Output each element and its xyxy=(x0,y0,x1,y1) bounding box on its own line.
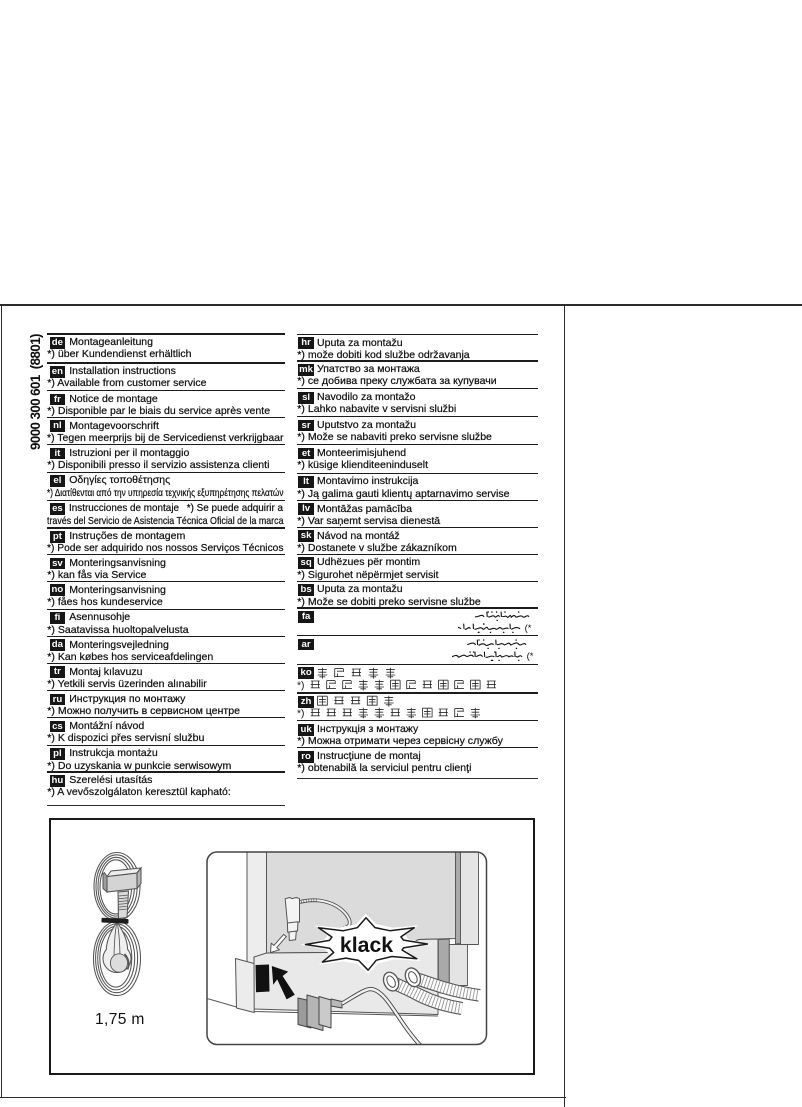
svg-text:(*: (* xyxy=(526,651,533,661)
svg-text:*): *) xyxy=(297,680,304,690)
svg-text:*): *) xyxy=(297,709,304,719)
svg-text:(*: (* xyxy=(524,624,531,634)
svg-text:klack: klack xyxy=(340,932,393,956)
